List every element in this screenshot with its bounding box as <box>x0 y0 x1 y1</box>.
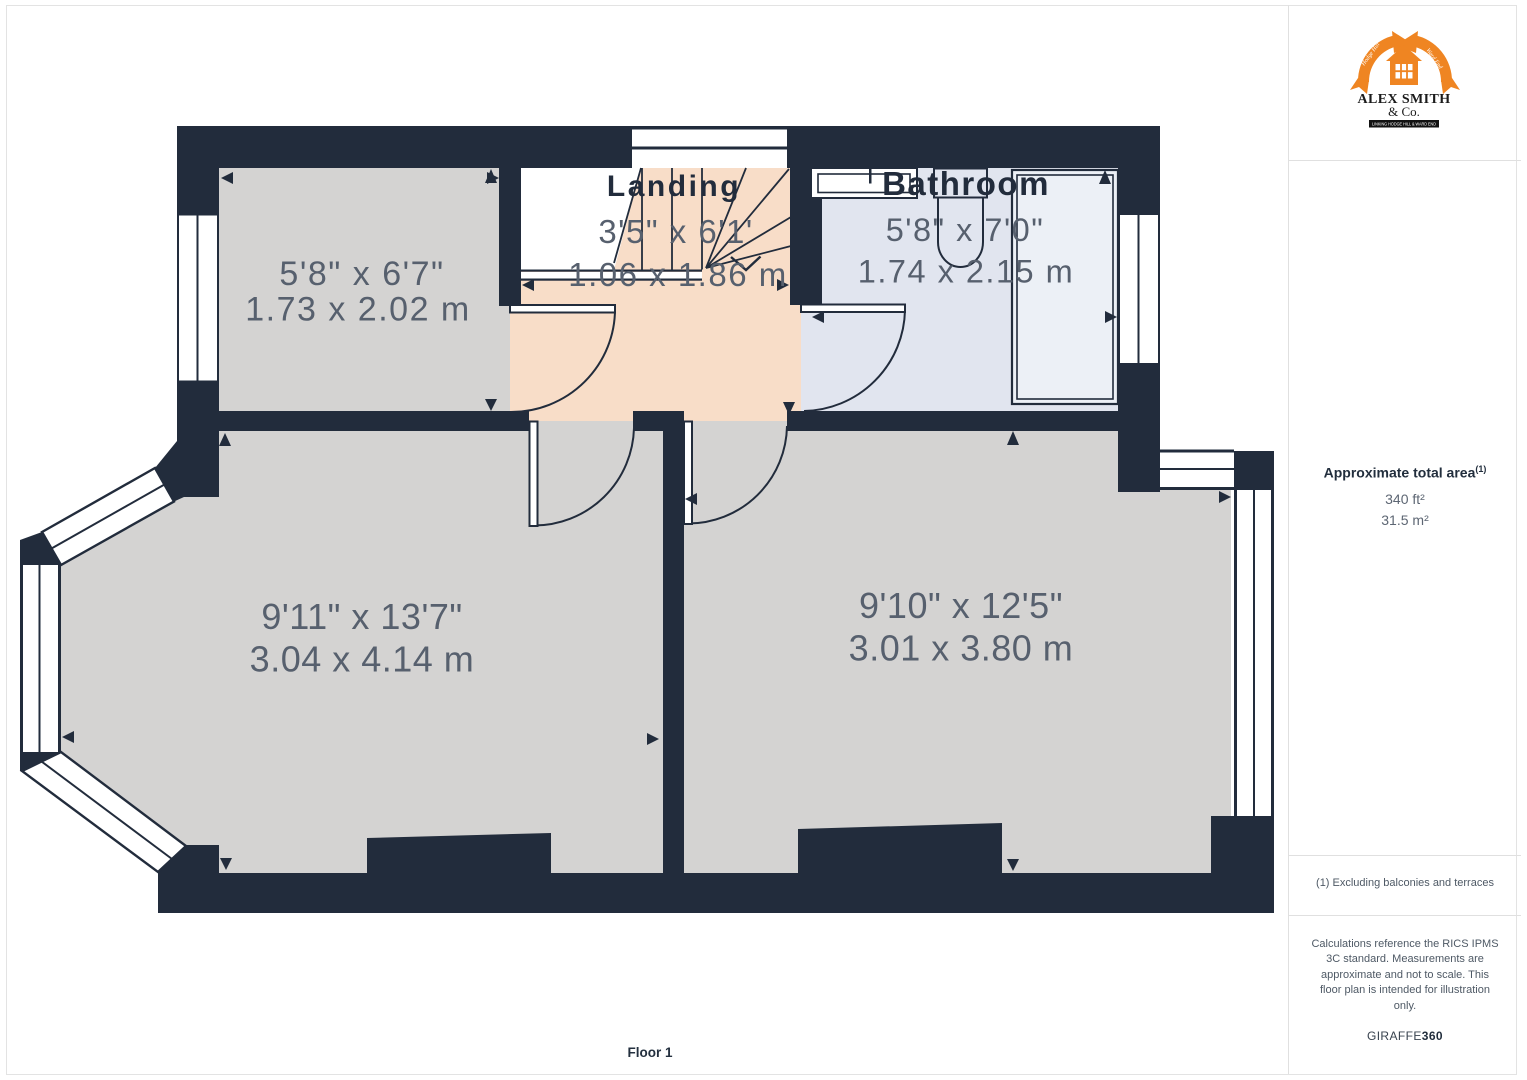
svg-text:& Co.: & Co. <box>1388 104 1420 119</box>
svg-text:1.06 x 1.86 m: 1.06 x 1.86 m <box>568 256 787 293</box>
svg-text:1.74 x 2.15 m: 1.74 x 2.15 m <box>858 254 1074 290</box>
svg-text:LINKING HODGE HILL & WARD END: LINKING HODGE HILL & WARD END <box>1372 121 1436 126</box>
svg-text:5'8" x 6'7": 5'8" x 6'7" <box>279 255 444 293</box>
svg-text:3.04 x 4.14 m: 3.04 x 4.14 m <box>250 639 475 680</box>
svg-text:3'5" x 6'1': 3'5" x 6'1' <box>598 213 753 250</box>
svg-text:3.01 x 3.80 m: 3.01 x 3.80 m <box>849 628 1074 669</box>
svg-text:Landing: Landing <box>607 170 741 203</box>
svg-text:Bathroom: Bathroom <box>882 165 1050 202</box>
svg-text:5'8" x 7'0": 5'8" x 7'0" <box>886 212 1045 248</box>
svg-text:9'11" x 13'7": 9'11" x 13'7" <box>261 596 462 637</box>
svg-text:9'10" x 12'5": 9'10" x 12'5" <box>859 585 1063 626</box>
svg-text:1.73 x 2.02 m: 1.73 x 2.02 m <box>245 291 471 329</box>
